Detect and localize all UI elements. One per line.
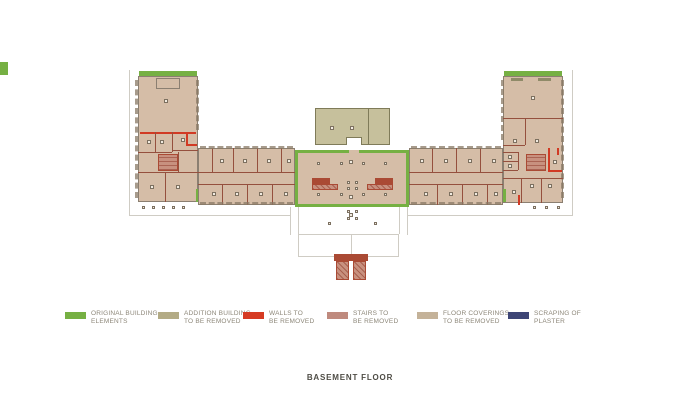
- room-marker: [212, 192, 216, 196]
- legend-swatch-tan: [417, 312, 438, 319]
- room-marker: [350, 126, 354, 130]
- room-marker: [349, 213, 353, 217]
- column-dot: [557, 206, 560, 209]
- legend-label: ADDITION BUILDINGTO BE REMOVED: [184, 310, 251, 326]
- stair-to-remove: [312, 184, 338, 190]
- room-marker: [424, 192, 428, 196]
- partition-wall: [480, 148, 481, 172]
- left-wing-columns-east: [196, 80, 199, 130]
- porch-outline: [399, 207, 400, 234]
- room-marker: [164, 99, 168, 103]
- exterior-stair-flight: [336, 261, 349, 280]
- partition-wall: [503, 170, 518, 171]
- room-marker: [444, 159, 448, 163]
- partition-wall: [155, 132, 156, 152]
- partition-wall: [212, 148, 213, 172]
- room-marker: [530, 184, 534, 188]
- legend-item-floor-coverings: FLOOR COVERINGSTO BE REMOVED: [417, 310, 509, 326]
- room-marker: [267, 159, 271, 163]
- partition-wall: [172, 150, 198, 151]
- room-marker: [220, 159, 224, 163]
- legend-label: WALLS TOBE REMOVED: [269, 310, 314, 326]
- legend-item-stairs-removed: STAIRS TOBE REMOVED: [327, 310, 398, 326]
- partition-wall: [198, 172, 295, 173]
- partition-wall: [503, 118, 563, 119]
- room-marker: [181, 138, 185, 142]
- room-marker: [330, 126, 334, 130]
- room-marker: [147, 140, 151, 144]
- exterior-stair-flight: [353, 261, 366, 280]
- wall-to-remove: [548, 148, 550, 172]
- column-dot: [533, 206, 536, 209]
- column-dot: [172, 206, 175, 209]
- column-dot: [355, 181, 358, 184]
- partition-wall: [503, 161, 518, 162]
- floor-title: BASEMENT FLOOR: [0, 373, 700, 382]
- stair-to-remove: [367, 184, 393, 190]
- offset-outline-bottom-left: [129, 215, 291, 216]
- room-marker: [243, 159, 247, 163]
- legend-swatch-green: [65, 312, 86, 319]
- partition-wall: [521, 178, 522, 203]
- partition-wall: [503, 178, 563, 179]
- partition-wall: [456, 148, 457, 172]
- partition-wall: [281, 148, 282, 172]
- column-dot: [162, 206, 165, 209]
- column-dot: [142, 206, 145, 209]
- left-wing: [138, 76, 198, 202]
- right-wing-columns-east: [561, 80, 564, 198]
- legend-swatch-navy: [508, 312, 529, 319]
- partition-wall: [165, 172, 166, 202]
- column-dot: [340, 162, 343, 165]
- room-marker: [349, 160, 353, 164]
- room-marker: [160, 140, 164, 144]
- partition-wall: [172, 132, 173, 152]
- band-columns-south: [411, 202, 501, 205]
- legend-item-original-building: ORIGINAL BUILDINGELEMENTS: [65, 310, 158, 326]
- partition-wall: [178, 152, 179, 172]
- room-marker: [531, 96, 535, 100]
- room-marker: [349, 195, 353, 199]
- offset-outline-bottom-right: [407, 215, 572, 216]
- porch-outline: [290, 207, 291, 235]
- partition-wall: [518, 152, 519, 170]
- column-dot: [152, 206, 155, 209]
- legend-label: SCRAPING OFPLASTER: [534, 310, 581, 326]
- left-wing-columns-west: [135, 80, 138, 198]
- column-dot: [182, 206, 185, 209]
- column-dot: [355, 210, 358, 213]
- partition-wall: [409, 172, 503, 173]
- wall-to-remove: [557, 148, 559, 155]
- room-marker: [492, 159, 496, 163]
- column-dot: [362, 162, 365, 165]
- porch-outline: [407, 207, 408, 235]
- room-marker: [513, 139, 517, 143]
- column-dot: [355, 217, 358, 220]
- column-dot: [347, 187, 350, 190]
- stair-to-remove: [158, 154, 178, 171]
- wall-to-remove: [518, 195, 520, 205]
- room-marker: [449, 192, 453, 196]
- legend-swatch-olive: [158, 312, 179, 319]
- band-columns-north: [200, 146, 293, 149]
- band-columns-north: [411, 146, 501, 149]
- partition-wall: [409, 184, 503, 185]
- room-marker: [508, 155, 512, 159]
- exterior-stair-landing: [334, 254, 368, 261]
- partition-wall: [138, 172, 198, 173]
- column-dot: [328, 222, 331, 225]
- page-edge-marker: [0, 62, 8, 75]
- room-marker: [535, 139, 539, 143]
- legend-swatch-red: [243, 312, 264, 319]
- room-marker: [287, 159, 291, 163]
- room-marker: [468, 159, 472, 163]
- room-marker: [508, 164, 512, 168]
- addition-notch: [346, 137, 362, 145]
- column-dot: [317, 193, 320, 196]
- room-marker: [259, 192, 263, 196]
- wall-to-remove: [186, 144, 197, 146]
- legend-item-scraping-plaster: SCRAPING OFPLASTER: [508, 310, 581, 326]
- column-dot: [384, 162, 387, 165]
- column-dot: [545, 206, 548, 209]
- room-marker: [284, 192, 288, 196]
- original-door: [503, 189, 506, 202]
- room-marker: [150, 185, 154, 189]
- column-dot: [317, 162, 320, 165]
- partition-wall: [541, 178, 542, 203]
- legend-item-addition-building: ADDITION BUILDINGTO BE REMOVED: [158, 310, 251, 326]
- partition-wall: [503, 145, 525, 146]
- column-dot: [384, 193, 387, 196]
- right-wing-columns-west: [501, 80, 504, 140]
- room-marker: [176, 185, 180, 189]
- column-dot: [355, 187, 358, 190]
- band-columns-south: [200, 202, 293, 205]
- room-marker: [494, 192, 498, 196]
- left-wing-inset: [156, 78, 180, 89]
- stair-to-remove: [526, 154, 546, 171]
- wall-niche: [511, 78, 523, 81]
- legend-item-walls-removed: WALLS TOBE REMOVED: [243, 310, 314, 326]
- column-dot: [347, 217, 350, 220]
- room-marker: [235, 192, 239, 196]
- room-marker: [474, 192, 478, 196]
- partition-wall: [525, 118, 526, 145]
- column-dot: [374, 222, 377, 225]
- column-dot: [340, 193, 343, 196]
- room-marker: [548, 184, 552, 188]
- partition-wall: [257, 148, 258, 172]
- hall-door-gap: [349, 150, 359, 153]
- legend-label: ORIGINAL BUILDINGELEMENTS: [91, 310, 158, 326]
- room-marker: [553, 160, 557, 164]
- column-dot: [362, 193, 365, 196]
- partition-wall: [138, 152, 172, 153]
- partition-wall: [432, 148, 433, 172]
- partition-wall: [503, 152, 518, 153]
- legend-label: FLOOR COVERINGSTO BE REMOVED: [443, 310, 509, 326]
- wall-niche: [538, 78, 551, 81]
- addition-partition: [368, 108, 369, 145]
- floor-plan-canvas: ORIGINAL BUILDINGELEMENTS ADDITION BUILD…: [0, 0, 700, 410]
- legend-label: STAIRS TOBE REMOVED: [353, 310, 398, 326]
- room-marker: [512, 190, 516, 194]
- porch-outline: [298, 207, 299, 234]
- room-marker: [420, 159, 424, 163]
- legend-swatch-pink: [327, 312, 348, 319]
- column-dot: [347, 181, 350, 184]
- partition-wall: [233, 148, 234, 172]
- offset-outline-right: [572, 70, 573, 216]
- offset-outline-left: [129, 70, 130, 216]
- wall-to-remove: [548, 170, 562, 172]
